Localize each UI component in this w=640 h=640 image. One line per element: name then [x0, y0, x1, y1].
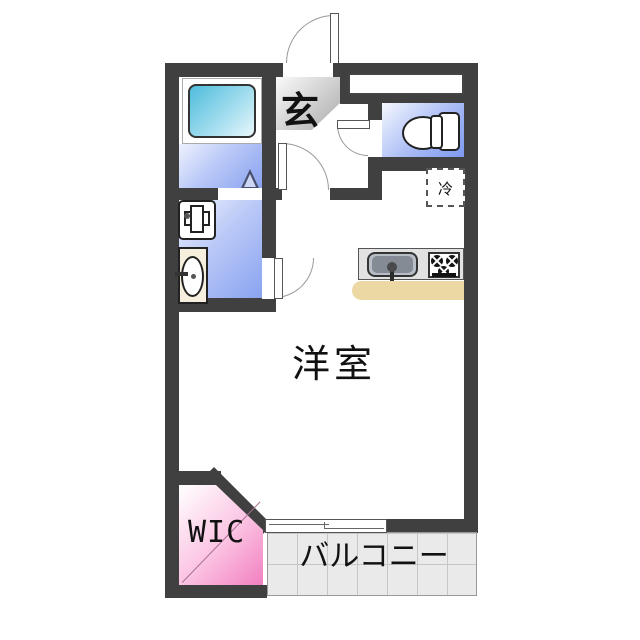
vanity-drain-dot — [191, 274, 196, 279]
sliding-door-icon — [265, 519, 387, 533]
genkan-label: 玄 — [281, 80, 319, 135]
toilet-door-leaf-icon — [337, 120, 370, 129]
room-door-leaf-icon — [278, 143, 287, 190]
refrigerator-label: 冷 — [426, 178, 465, 199]
washing-machine-cross-v — [190, 205, 204, 233]
toilet-door-opening — [368, 120, 382, 157]
washing-machine-faucet-dot — [184, 213, 190, 219]
balcony-label: バルコニー — [277, 531, 471, 575]
toilet-door-arc-icon — [337, 125, 368, 156]
kitchen-faucet-knob — [387, 262, 397, 272]
wall-right — [464, 63, 478, 533]
window-icon — [348, 73, 464, 95]
entrance-opening — [283, 63, 333, 77]
floor-plan: 玄 冷 洋室 WIC バルコニー — [0, 0, 640, 640]
kitchen-counter-edge — [352, 281, 464, 300]
main-room-label: 洋室 — [292, 333, 376, 388]
sliding-door-panel-line — [324, 528, 384, 529]
bath-door-opening — [218, 188, 262, 200]
toilet-seat-icon — [430, 115, 443, 149]
vanity-faucet-icon — [175, 272, 188, 276]
sliding-door-panel-line — [269, 524, 329, 525]
wall-left — [165, 63, 179, 598]
bathtub-icon — [188, 84, 256, 138]
entrance-door-leaf-icon — [330, 13, 339, 64]
washroom-door-leaf-icon — [274, 258, 283, 299]
stove-grill-bar — [432, 273, 456, 277]
wall-bottom-left — [165, 585, 267, 598]
room-door-arc-icon — [282, 143, 329, 190]
sliding-door-center-tick — [324, 522, 325, 529]
wic-label: WIC — [188, 515, 245, 550]
entrance-door-arc-icon — [286, 15, 334, 63]
